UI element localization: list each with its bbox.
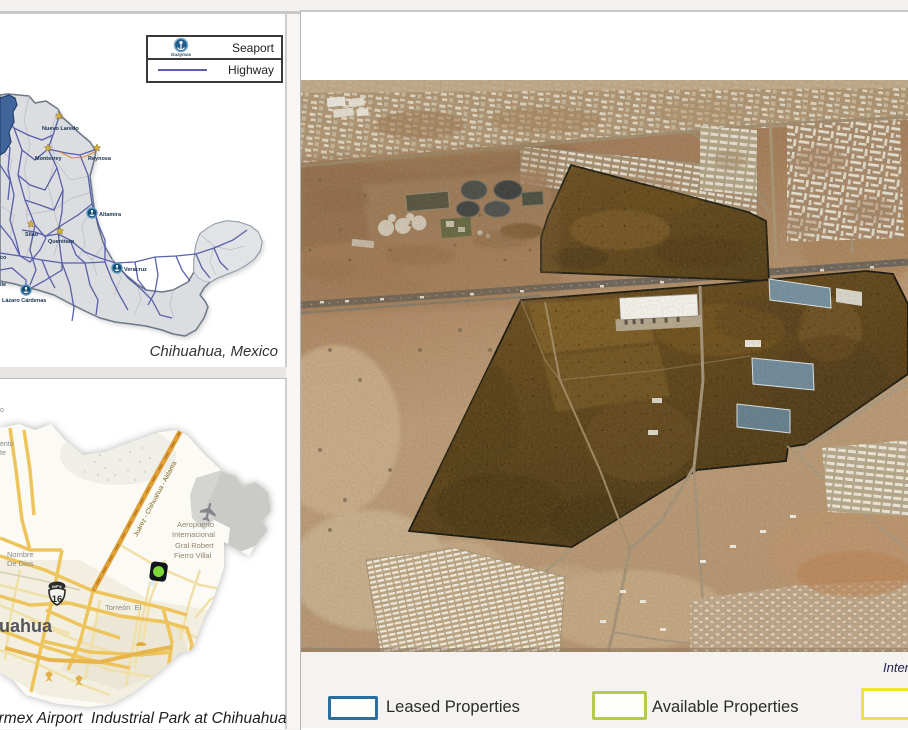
svg-text:ento: ento	[0, 441, 14, 448]
svg-text:o: o	[0, 407, 4, 414]
svg-text:Chihuahua: Chihuahua	[0, 616, 53, 636]
svg-text:Gral Robert: Gral Robert	[175, 541, 215, 550]
svg-text:Monterrey: Monterrey	[35, 156, 63, 162]
svg-text:Lázaro Cárdenas: Lázaro Cárdenas	[2, 298, 46, 304]
svg-text:Aeropuerto: Aeropuerto	[177, 520, 214, 529]
svg-text:Veracruz: Veracruz	[124, 267, 147, 273]
svg-text:Nombre: Nombre	[7, 550, 34, 559]
svg-text:Reynosa: Reynosa	[88, 156, 112, 162]
svg-text:Fierro Villal: Fierro Villal	[174, 551, 212, 560]
svg-text:16: 16	[52, 594, 63, 605]
svg-text:Internacional: Internacional	[172, 530, 215, 539]
svg-text:lle: lle	[0, 282, 6, 288]
svg-text:Querétaro: Querétaro	[48, 239, 75, 245]
svg-text:Nuevo Laredo: Nuevo Laredo	[42, 126, 79, 132]
svg-text:Silao: Silao	[25, 232, 39, 238]
svg-text:Torreón El: Torreón El	[105, 603, 142, 612]
svg-text:Guaymas: Guaymas	[171, 52, 192, 57]
svg-text:De Dios: De Dios	[7, 559, 34, 568]
svg-text:Altamira: Altamira	[99, 212, 122, 218]
svg-text:te: te	[0, 450, 6, 457]
svg-text:co: co	[0, 255, 7, 261]
